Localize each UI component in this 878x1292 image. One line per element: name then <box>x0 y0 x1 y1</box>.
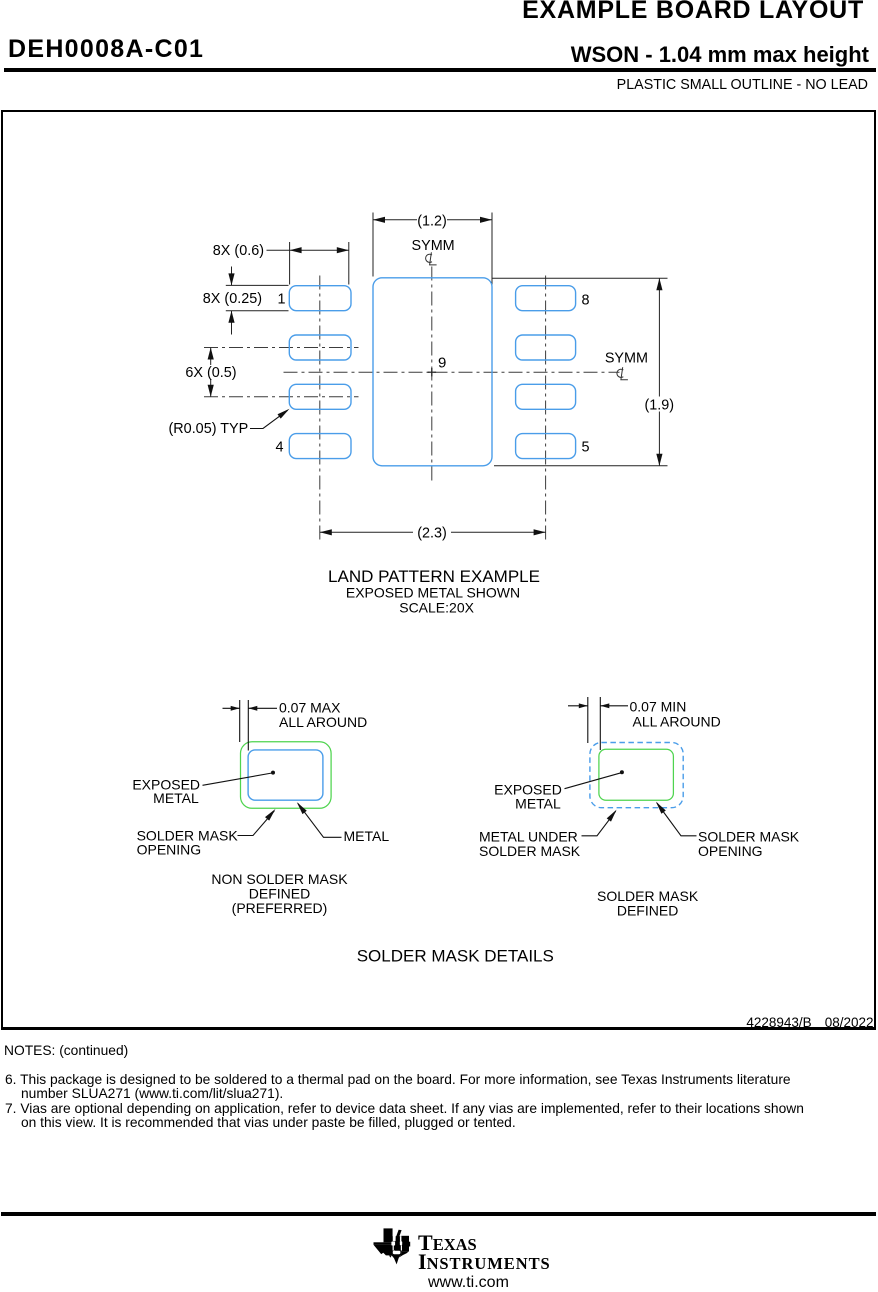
svg-text:ALL AROUND: ALL AROUND <box>279 714 367 730</box>
svg-text:8: 8 <box>582 293 590 309</box>
svg-text:(1.2): (1.2) <box>417 214 447 230</box>
svg-text:9: 9 <box>438 355 446 372</box>
svg-text:OPENING: OPENING <box>137 842 202 858</box>
svg-text:0.07 MIN: 0.07 MIN <box>630 699 687 715</box>
svg-text:ALL AROUND: ALL AROUND <box>633 714 721 730</box>
svg-text:METAL: METAL <box>344 828 390 844</box>
svg-text:(PREFERRED): (PREFERRED) <box>232 900 328 916</box>
svg-text:SYMM: SYMM <box>605 351 648 367</box>
svg-text:SOLDER MASK: SOLDER MASK <box>698 829 800 845</box>
svg-text:(2.3): (2.3) <box>417 526 447 542</box>
svg-text:SOLDER MASK DETAILS: SOLDER MASK DETAILS <box>357 946 554 965</box>
svg-text:4: 4 <box>275 440 283 456</box>
svg-text:METAL: METAL <box>515 795 561 811</box>
svg-text:1: 1 <box>277 291 285 307</box>
svg-text:6X (0.5): 6X (0.5) <box>185 365 236 381</box>
svg-text:DEFINED: DEFINED <box>617 902 678 918</box>
svg-text:SYMM: SYMM <box>412 238 455 254</box>
svg-text:SOLDER MASK: SOLDER MASK <box>479 843 581 859</box>
svg-text:LAND PATTERN EXAMPLE: LAND PATTERN EXAMPLE <box>328 567 540 586</box>
svg-text:5: 5 <box>582 439 590 455</box>
svg-text:METAL: METAL <box>153 790 199 806</box>
svg-text:(1.9): (1.9) <box>645 398 675 414</box>
svg-text:METAL UNDER: METAL UNDER <box>479 829 578 845</box>
svg-text:8X (0.6): 8X (0.6) <box>213 243 264 259</box>
svg-text:8X (0.25): 8X (0.25) <box>203 291 262 307</box>
svg-text:EXPOSED METAL SHOWN: EXPOSED METAL SHOWN <box>346 585 520 601</box>
svg-text:SCALE:20X: SCALE:20X <box>399 599 474 615</box>
svg-text:(R0.05) TYP: (R0.05) TYP <box>169 421 249 437</box>
svg-text:OPENING: OPENING <box>698 843 763 859</box>
